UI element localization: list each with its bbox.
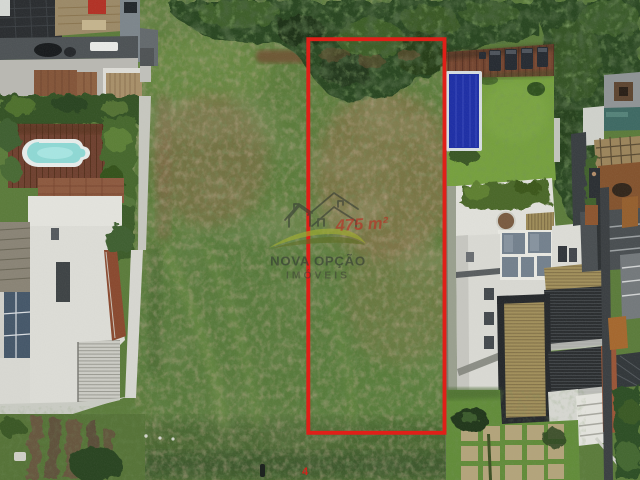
- svg-text:4: 4: [302, 466, 309, 478]
- svg-text:NOVA OPÇÃO: NOVA OPÇÃO: [270, 254, 366, 269]
- svg-text:IMÓVEIS: IMÓVEIS: [286, 269, 350, 282]
- svg-text:475 m²: 475 m²: [334, 214, 389, 235]
